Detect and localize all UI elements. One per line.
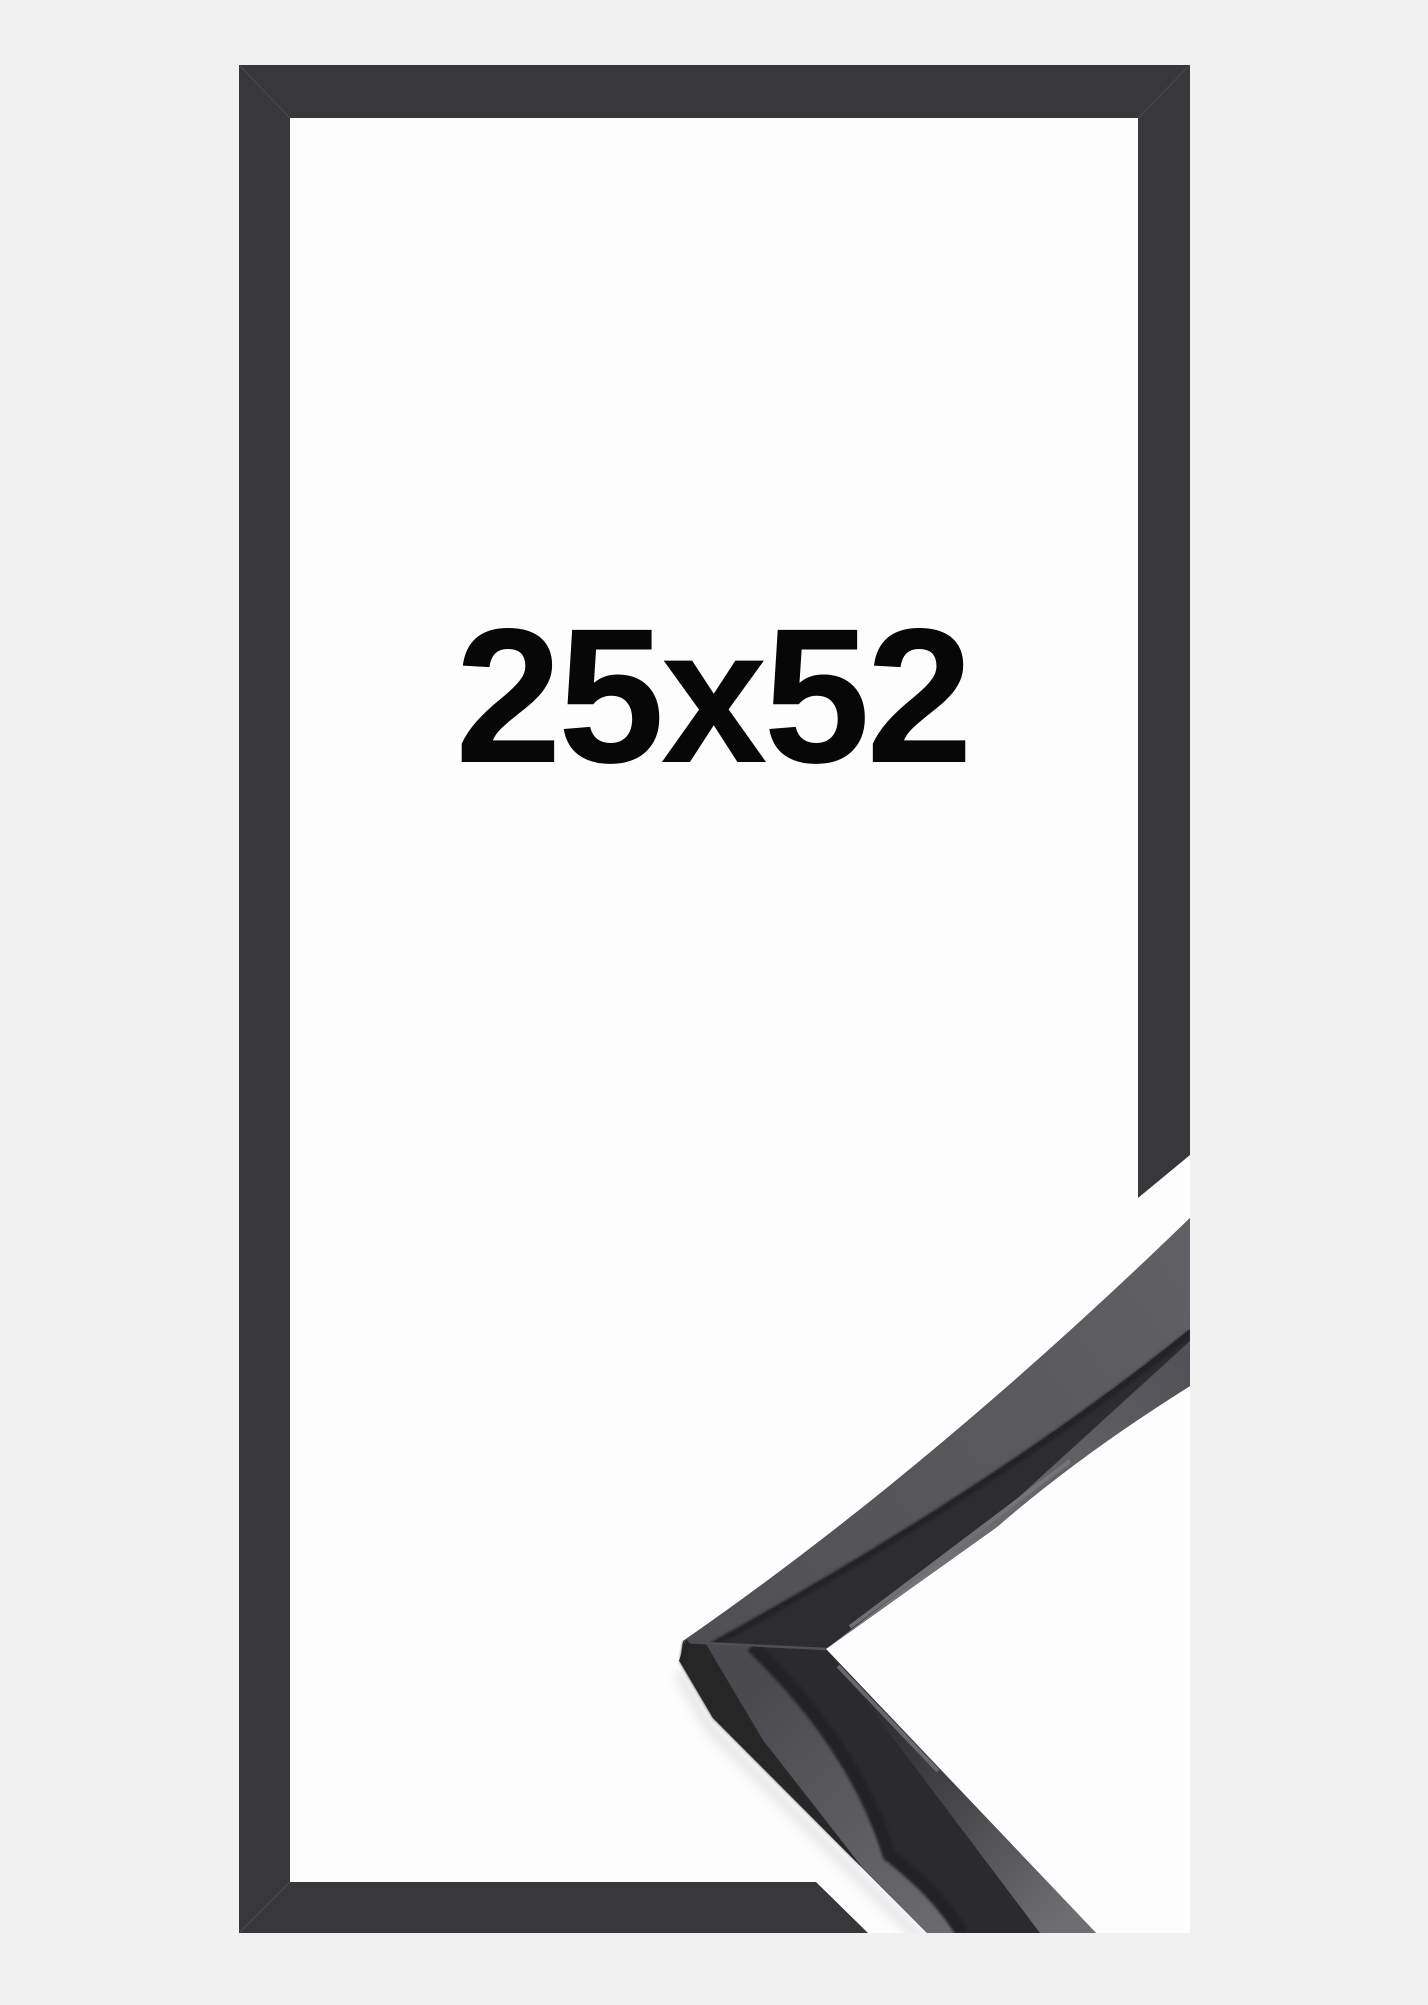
- svg-text:25x52: 25x52: [455, 588, 969, 803]
